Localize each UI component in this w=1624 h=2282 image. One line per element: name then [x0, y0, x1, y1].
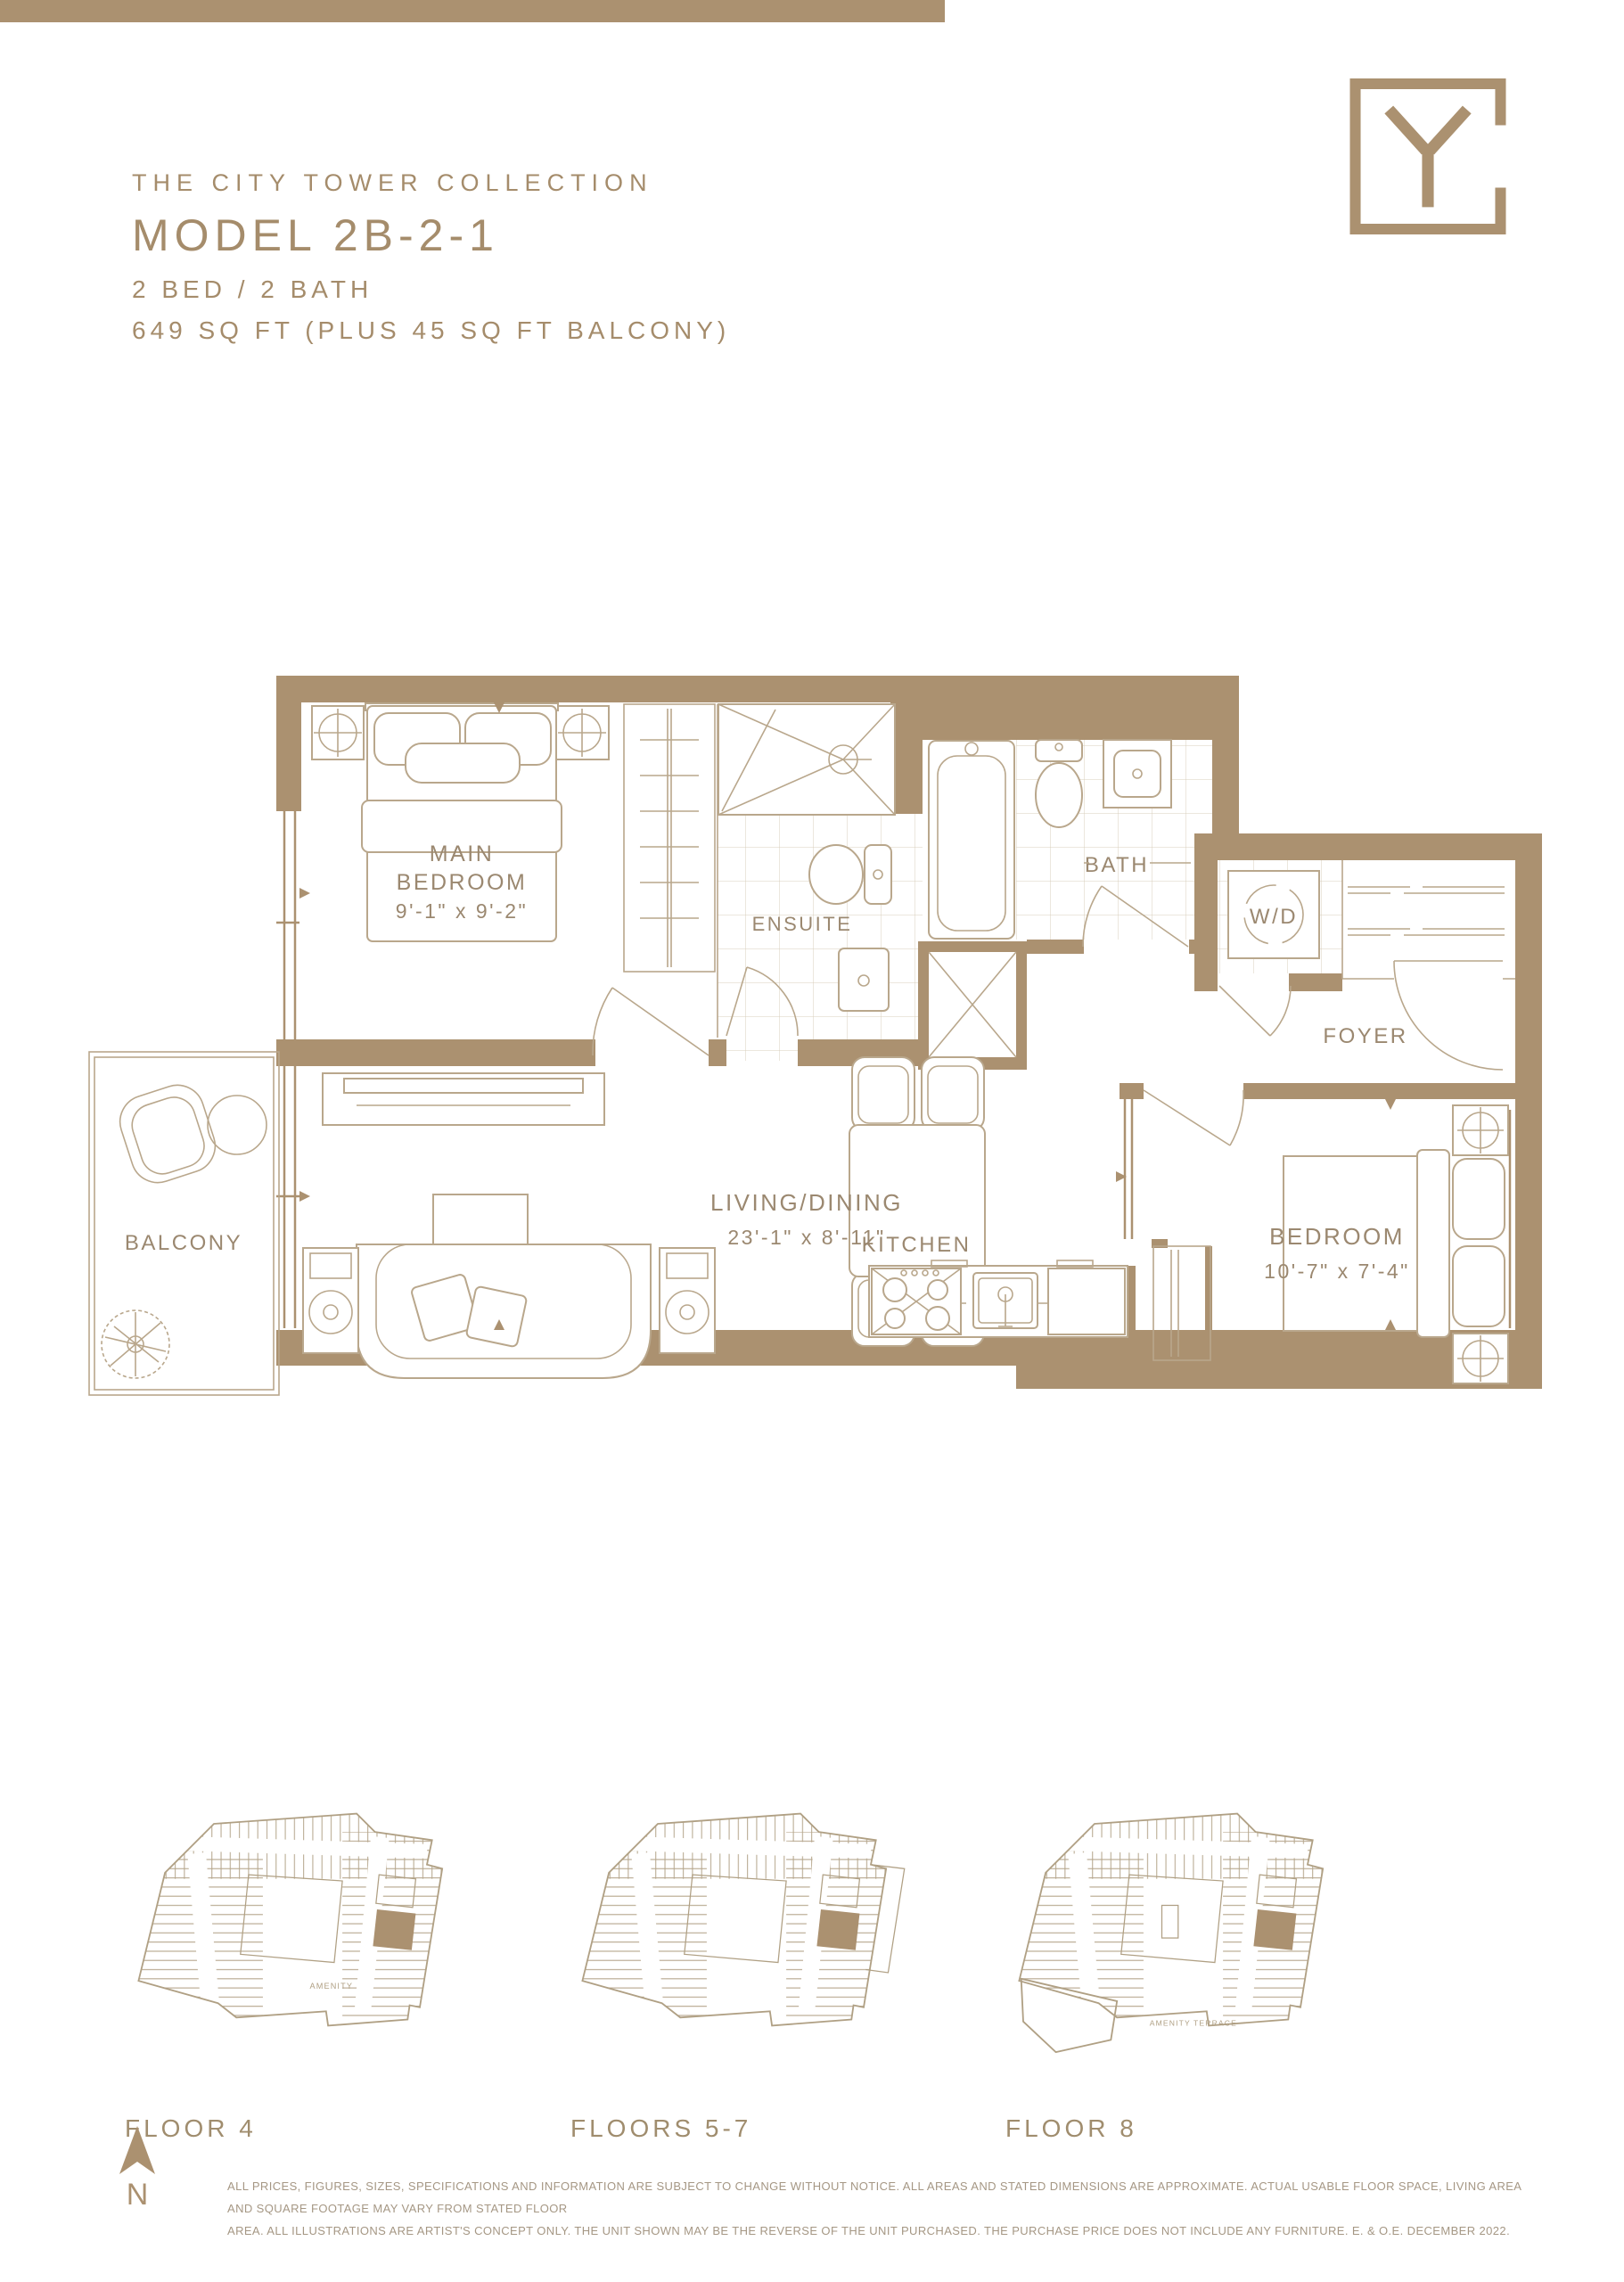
- laundry-closet: W/D: [1228, 871, 1319, 958]
- bedroom2-dims: 10'-7" x 7'-4": [1264, 1260, 1410, 1283]
- balcony: BALCONY: [89, 1052, 279, 1395]
- yc-brand-logo-icon: [1348, 78, 1508, 234]
- title-block: THE CITY TOWER COLLECTION MODEL 2B-2-1 2…: [132, 169, 730, 345]
- kitchen: KITCHEN: [862, 1233, 1128, 1337]
- disclaimer-line-2: AREA. ALL ILLUSTRATIONS ARE ARTIST'S CON…: [227, 2220, 1529, 2242]
- main-bedroom-label-1: MAIN: [430, 841, 495, 866]
- main-bedroom: MAIN BEDROOM 9'-1" x 9'-2": [312, 703, 715, 972]
- balcony-table: [208, 1096, 267, 1154]
- balcony-plant: [102, 1310, 169, 1378]
- keyplan-floors-5-7: [560, 1810, 912, 2080]
- unit-floorplan: BALCONY MAIN BEDROOM 9'-1" x 9'-2": [85, 651, 1564, 1408]
- main-bedroom-door: [593, 988, 709, 1055]
- main-bedroom-label-2: BEDROOM: [397, 870, 528, 895]
- stove: [872, 1268, 961, 1334]
- highlighted-unit: [816, 1909, 859, 1950]
- bed-bath-count: 2 BED / 2 BATH: [132, 275, 730, 304]
- amenity-label: AMENITY: [310, 1982, 354, 1991]
- main-bedroom-dims: 9'-1" x 9'-2": [396, 899, 528, 923]
- keyplan-floors-5-7-label: FLOORS 5-7: [570, 2114, 751, 2143]
- keyplan-floor-8: AMENITY TERRACE: [997, 1810, 1349, 2080]
- bedroom2-label: BEDROOM: [1269, 1223, 1405, 1250]
- main-bedroom-closet: [624, 704, 715, 972]
- balcony-label: BALCONY: [125, 1231, 242, 1255]
- model-name: MODEL 2B-2-1: [132, 209, 730, 261]
- highlighted-unit: [1253, 1909, 1296, 1950]
- bath-sink: [1103, 740, 1171, 808]
- laundry-door: [1219, 986, 1291, 1036]
- collection-title: THE CITY TOWER COLLECTION: [132, 169, 730, 197]
- shaft: [929, 952, 1016, 1057]
- amenity-terrace-label: AMENITY TERRACE: [1150, 2018, 1237, 2027]
- balcony-chair: [113, 1079, 222, 1190]
- top-accent-bar: [0, 0, 945, 22]
- disclaimer: ALL PRICES, FIGURES, SIZES, SPECIFICATIO…: [227, 2175, 1529, 2242]
- keyplan-floor-4: AMENITY: [116, 1810, 468, 2080]
- bath-label: BATH: [1085, 853, 1149, 877]
- ensuite-toilet: [809, 845, 891, 904]
- sofa: [357, 1244, 651, 1378]
- bath-toilet: [1036, 740, 1082, 827]
- north-arrow-icon: N: [114, 2126, 164, 2208]
- north-label: N: [127, 2178, 149, 2208]
- kitchen-sink: [973, 1273, 1038, 1328]
- foyer-label: FOYER: [1323, 1024, 1407, 1048]
- entry-door: [1394, 961, 1503, 1070]
- disclaimer-line-1: ALL PRICES, FIGURES, SIZES, SPECIFICATIO…: [227, 2175, 1529, 2220]
- bedroom2-door: [1144, 1090, 1243, 1145]
- speaker-right: [660, 1248, 715, 1353]
- wd-label: W/D: [1250, 905, 1298, 929]
- highlighted-unit: [373, 1909, 415, 1950]
- keyplan-floor-8-label: FLOOR 8: [1005, 2114, 1137, 2143]
- kitchen-label: KITCHEN: [862, 1233, 972, 1257]
- living-dining-label: LIVING/DINING: [710, 1189, 903, 1216]
- speaker-left: [303, 1248, 358, 1353]
- square-footage: 649 SQ FT (PLUS 45 SQ FT BALCONY): [132, 316, 730, 345]
- ensuite-sink: [839, 948, 889, 1011]
- floorplan-page: { "header": { "collection": "THE CITY TO…: [0, 0, 1624, 2282]
- ensuite-label: ENSUITE: [752, 913, 853, 935]
